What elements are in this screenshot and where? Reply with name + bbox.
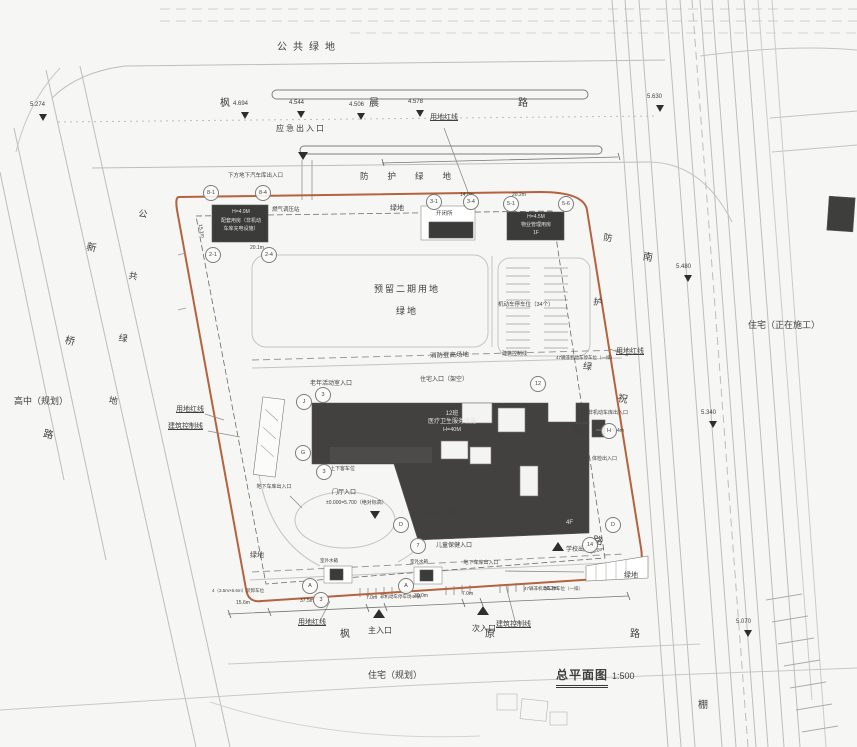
spot-elevation: 5.274	[30, 102, 45, 110]
secondary-entrance-arrow-icon	[477, 606, 489, 615]
green-label: 绿地	[390, 205, 404, 214]
switch-station-building	[429, 222, 473, 238]
grid-bubble: A	[302, 578, 318, 594]
boundary-layer	[176, 192, 641, 601]
emergency-exit-label: 应急出入口	[276, 124, 326, 134]
grid-bubble: 8-1	[203, 185, 219, 201]
child-health-entry-label: 儿童保健入口	[436, 543, 472, 551]
protective-green-top: 防护绿地	[360, 171, 470, 182]
road-name-bottom: 枫原路	[340, 629, 775, 642]
abs-elevation-label: ±0.000=5.700（绝对标高）	[326, 500, 387, 506]
gas-station-label: 燃气调压站	[272, 207, 300, 214]
fire-lane-label: 消防登高场地	[430, 351, 469, 360]
grid-bubble: 2-4	[261, 247, 277, 263]
control-line-label-left: 建筑控制线	[168, 423, 203, 432]
resident-entry-label: 住宅入口（架空）	[420, 377, 468, 385]
buildings-layer	[212, 196, 855, 725]
support-building-line1: H=4.9M	[213, 209, 269, 215]
dim-label: 15.6m	[236, 600, 250, 606]
drawing-scale: 1:500	[612, 671, 635, 682]
lobby-entry-label: 门厅入口	[332, 490, 356, 498]
spot-elevation: 5.070	[736, 619, 751, 627]
emergency-exit-arrow-icon	[298, 152, 308, 160]
control-line-label-mid: 建筑控制线	[502, 351, 527, 357]
property-building-line2: 物业管理用房	[508, 222, 564, 228]
main-building-floors: 4F	[566, 520, 573, 528]
spot-elevation: 4.694	[233, 101, 248, 109]
garage-entry-label-east: 地下车库出入口	[458, 560, 504, 566]
grid-bubble: G	[295, 445, 311, 461]
grid-bubble: 8-4	[255, 185, 271, 201]
grid-bubble: 5-1	[503, 196, 519, 212]
grid-bubble: 3	[313, 592, 329, 608]
grid-bubble: 12	[530, 376, 546, 392]
dim-label: 30.0m	[414, 593, 428, 599]
elevation-marker-icon	[684, 275, 692, 282]
elevation-marker-icon	[416, 110, 424, 117]
main-building-line3: H=40M	[410, 427, 494, 434]
green-label: 绿地	[624, 572, 638, 581]
dim-label: 37.5m	[300, 598, 314, 604]
grid-bubble: 3	[315, 387, 331, 403]
water-tank-label: 室外水箱	[410, 559, 428, 565]
elevation-marker-icon	[241, 112, 249, 119]
spot-elevation: 4.578	[408, 99, 423, 107]
road-name-top: 枫晨路	[220, 98, 667, 111]
ramp-note-label: 下方地下汽车库出入口	[228, 173, 283, 180]
offsite-building	[827, 196, 855, 232]
land-red-line	[176, 192, 641, 601]
west-annex-building	[253, 397, 284, 477]
grid-bubble: 3-4	[463, 194, 479, 210]
main-entrance-arrow-icon	[373, 609, 385, 618]
residential-construction-label: 住宅（正在施工）	[748, 320, 820, 331]
spot-elevation: 4.506	[349, 102, 364, 110]
grid-bubble: J	[296, 394, 312, 410]
shed-label: 棚	[698, 700, 708, 713]
elevation-marker-icon	[297, 111, 305, 118]
red-line-label-bottom: 用地红线	[298, 619, 326, 628]
nonmotor-garage-entry-label: 非机动车库出入口	[588, 410, 628, 416]
main-building-line1: 12班	[410, 411, 494, 419]
loading-bay-label: 4（3.5m×6.6m）装卸车位	[212, 588, 264, 594]
site-plan-drawing: 公共绿地 枫晨路 应急出入口 用地红线 防护绿地 5.274 4.694 4.5…	[0, 0, 857, 747]
lobby-elevation-marker-icon	[370, 511, 380, 519]
grid-bubble: D	[605, 517, 621, 533]
public-green-label: 公共绿地	[277, 42, 341, 55]
grid-bubble: 3	[316, 464, 332, 480]
water-tank-box	[420, 570, 433, 581]
exam-entry-label: 体检出入口	[592, 456, 617, 462]
drawing-title: 总平面图	[556, 668, 608, 688]
grid-bubble: D	[393, 517, 409, 533]
grid-bubble: 3-1	[426, 194, 442, 210]
green-label: 绿地	[250, 552, 264, 561]
support-building-line2: 配套用房（非机动	[213, 218, 269, 224]
property-building-line1: H=4.5M	[508, 214, 564, 220]
red-line-label-left: 用地红线	[176, 406, 204, 415]
dim-label: 56.2m	[544, 586, 558, 592]
drop-off-label: 上下客车位	[330, 466, 355, 472]
dim-label: 7.0m	[462, 591, 473, 597]
spot-elevation: 5.630	[647, 94, 662, 102]
green-label: 绿地	[396, 306, 418, 317]
elevation-marker-icon	[39, 114, 47, 121]
high-school-label: 高中（规划）	[14, 396, 68, 407]
grid-bubble: 14	[582, 537, 598, 553]
main-building-line2: 医疗卫生服务设施	[410, 419, 494, 427]
nonmotor-row-label: 47辆非机动车停车位（一排）	[556, 355, 615, 361]
grid-bubble: 5-6	[558, 196, 574, 212]
elevation-marker-icon	[709, 421, 717, 428]
water-tank-label: 室外水箱	[320, 558, 338, 564]
switch-station-label: 开闭所	[436, 211, 453, 218]
spot-elevation: 5.340	[701, 410, 716, 418]
red-line-label-right: 用地红线	[616, 348, 644, 357]
red-line-label-top: 用地红线	[430, 114, 458, 123]
grid-bubble: H	[601, 423, 617, 439]
parking-lot-label: 机动车停车位（34个）	[498, 302, 554, 309]
grid-bubble: 2-1	[205, 247, 221, 263]
property-building-line3: 1F	[508, 230, 564, 236]
grid-bubble: A	[398, 578, 414, 594]
grid-bubble: 7	[410, 538, 426, 554]
plaza-label: 入口广场	[420, 509, 456, 518]
dim-label: 7.0m	[366, 595, 377, 601]
spot-elevation: 5.480	[676, 264, 691, 272]
school-entry-arrow-icon	[552, 542, 564, 551]
water-tank-box	[330, 569, 343, 580]
residential-planned-label: 住宅（规划）	[368, 670, 422, 681]
elderly-entry-label: 老年活动室入口	[310, 381, 352, 389]
garage-entry-label-west: 地下车库出入口	[252, 484, 296, 490]
support-building-line3: 车库充电设施）	[213, 226, 269, 232]
reserved-phase2-label: 预留二期用地	[374, 284, 440, 295]
spot-elevation: 4.544	[289, 100, 304, 108]
